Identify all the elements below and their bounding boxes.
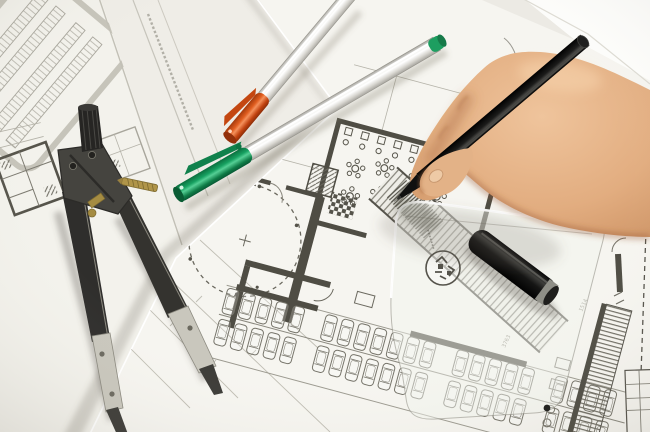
photo-vignette [0,0,650,432]
photo-architect-drawing: 5753 186 3763 1514 [0,0,650,432]
photo-canvas: 5753 186 3763 1514 [0,0,650,432]
